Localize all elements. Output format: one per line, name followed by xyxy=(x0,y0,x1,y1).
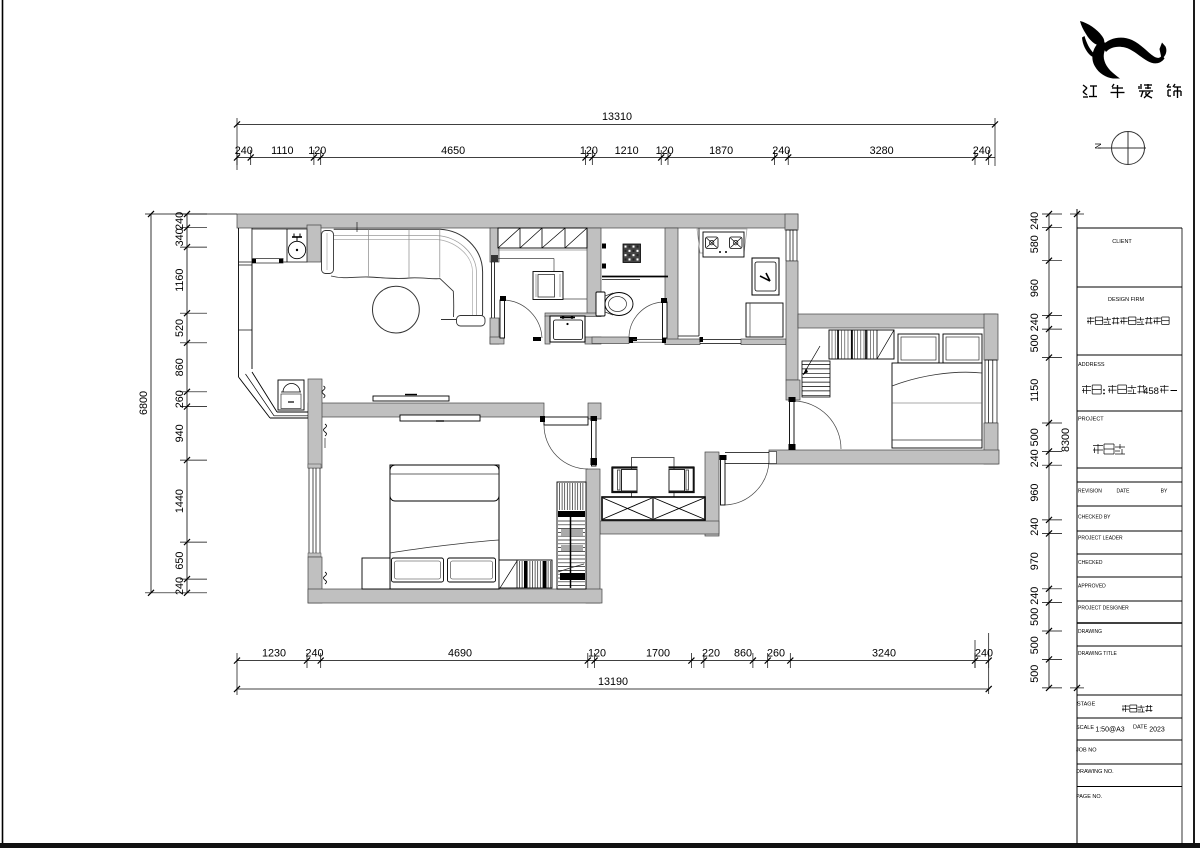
svg-text:DRAWING: DRAWING xyxy=(1078,629,1102,635)
svg-text:120: 120 xyxy=(588,648,606,660)
svg-text:970: 970 xyxy=(1029,552,1041,570)
svg-text:260: 260 xyxy=(767,648,785,660)
svg-text:260: 260 xyxy=(174,390,186,408)
svg-text:DRAWING TITLE: DRAWING TITLE xyxy=(1078,651,1118,657)
svg-text:6800: 6800 xyxy=(138,391,150,415)
svg-text:1210: 1210 xyxy=(615,145,639,157)
svg-text:PAGE NO.: PAGE NO. xyxy=(1076,794,1103,800)
svg-text:2023: 2023 xyxy=(1149,727,1165,734)
svg-text:13310: 13310 xyxy=(602,111,632,123)
svg-text:REVISION: REVISION xyxy=(1078,489,1102,495)
svg-text:JOB NO: JOB NO xyxy=(1076,748,1097,754)
svg-text:240: 240 xyxy=(174,577,186,595)
svg-text:1110: 1110 xyxy=(271,145,293,157)
svg-text:1440: 1440 xyxy=(174,489,186,513)
svg-text:1700: 1700 xyxy=(646,648,670,660)
svg-text:240: 240 xyxy=(1029,212,1041,230)
svg-text:DESIGN FIRM: DESIGN FIRM xyxy=(1108,297,1144,303)
svg-text:500: 500 xyxy=(1029,636,1041,654)
svg-text:4690: 4690 xyxy=(448,648,472,660)
svg-text:PROJECT LEADER: PROJECT LEADER xyxy=(1078,536,1123,542)
svg-text:860: 860 xyxy=(174,358,186,376)
svg-text:120: 120 xyxy=(580,145,598,157)
svg-text:240: 240 xyxy=(973,145,991,157)
svg-text:DRAWING NO.: DRAWING NO. xyxy=(1076,769,1114,775)
svg-text:3240: 3240 xyxy=(872,648,896,660)
svg-text:1870: 1870 xyxy=(709,145,733,157)
svg-text:120: 120 xyxy=(308,145,326,157)
svg-text:1150: 1150 xyxy=(1029,379,1041,402)
svg-text:4650: 4650 xyxy=(441,145,465,157)
svg-text:CHECKED: CHECKED xyxy=(1078,560,1103,566)
svg-text:960: 960 xyxy=(1029,484,1041,502)
svg-text:520: 520 xyxy=(174,319,186,337)
svg-text:13190: 13190 xyxy=(598,676,628,688)
svg-text:960: 960 xyxy=(1029,279,1041,297)
svg-text:PROJECT: PROJECT xyxy=(1078,417,1104,423)
svg-text:1230: 1230 xyxy=(262,648,286,660)
svg-text:PROJECT DESIGNER: PROJECT DESIGNER xyxy=(1078,606,1129,612)
svg-text:580: 580 xyxy=(1029,235,1041,253)
svg-text:240: 240 xyxy=(1029,313,1041,331)
svg-text:240: 240 xyxy=(1029,449,1041,467)
svg-text:860: 860 xyxy=(734,648,752,660)
svg-text:BY: BY xyxy=(1161,489,1168,495)
svg-text:220: 220 xyxy=(702,648,720,660)
svg-text:240: 240 xyxy=(235,145,253,157)
svg-text:8300: 8300 xyxy=(1060,428,1072,452)
svg-text:340: 340 xyxy=(174,228,186,246)
svg-text:3280: 3280 xyxy=(870,145,894,157)
svg-text:240: 240 xyxy=(305,648,323,660)
svg-text:240: 240 xyxy=(975,648,993,660)
svg-text:DATE: DATE xyxy=(1133,725,1148,731)
svg-text:CLIENT: CLIENT xyxy=(1112,239,1132,245)
svg-text:240: 240 xyxy=(772,145,790,157)
svg-text:DATE: DATE xyxy=(1117,489,1131,495)
svg-text:SCALE: SCALE xyxy=(1076,725,1094,731)
svg-text:120: 120 xyxy=(656,145,674,157)
svg-text:650: 650 xyxy=(174,552,186,570)
svg-text:240: 240 xyxy=(174,212,186,230)
svg-text:500: 500 xyxy=(1029,665,1041,683)
svg-text:1160: 1160 xyxy=(174,269,186,292)
svg-text:1:50@A3: 1:50@A3 xyxy=(1095,727,1124,734)
svg-text:N: N xyxy=(1093,143,1103,149)
svg-text:500: 500 xyxy=(1029,608,1041,626)
svg-text:940: 940 xyxy=(174,424,186,442)
svg-text:458: 458 xyxy=(1143,386,1159,397)
svg-text:500: 500 xyxy=(1029,334,1041,352)
svg-text:ADDRESS: ADDRESS xyxy=(1078,362,1105,368)
svg-text:CHECKED BY: CHECKED BY xyxy=(1078,515,1111,521)
svg-text:APPROVED: APPROVED xyxy=(1078,584,1106,590)
svg-text:500: 500 xyxy=(1029,428,1041,446)
svg-text:STAGE: STAGE xyxy=(1077,702,1096,708)
svg-text:240: 240 xyxy=(1029,518,1041,536)
svg-text:240: 240 xyxy=(1029,587,1041,605)
